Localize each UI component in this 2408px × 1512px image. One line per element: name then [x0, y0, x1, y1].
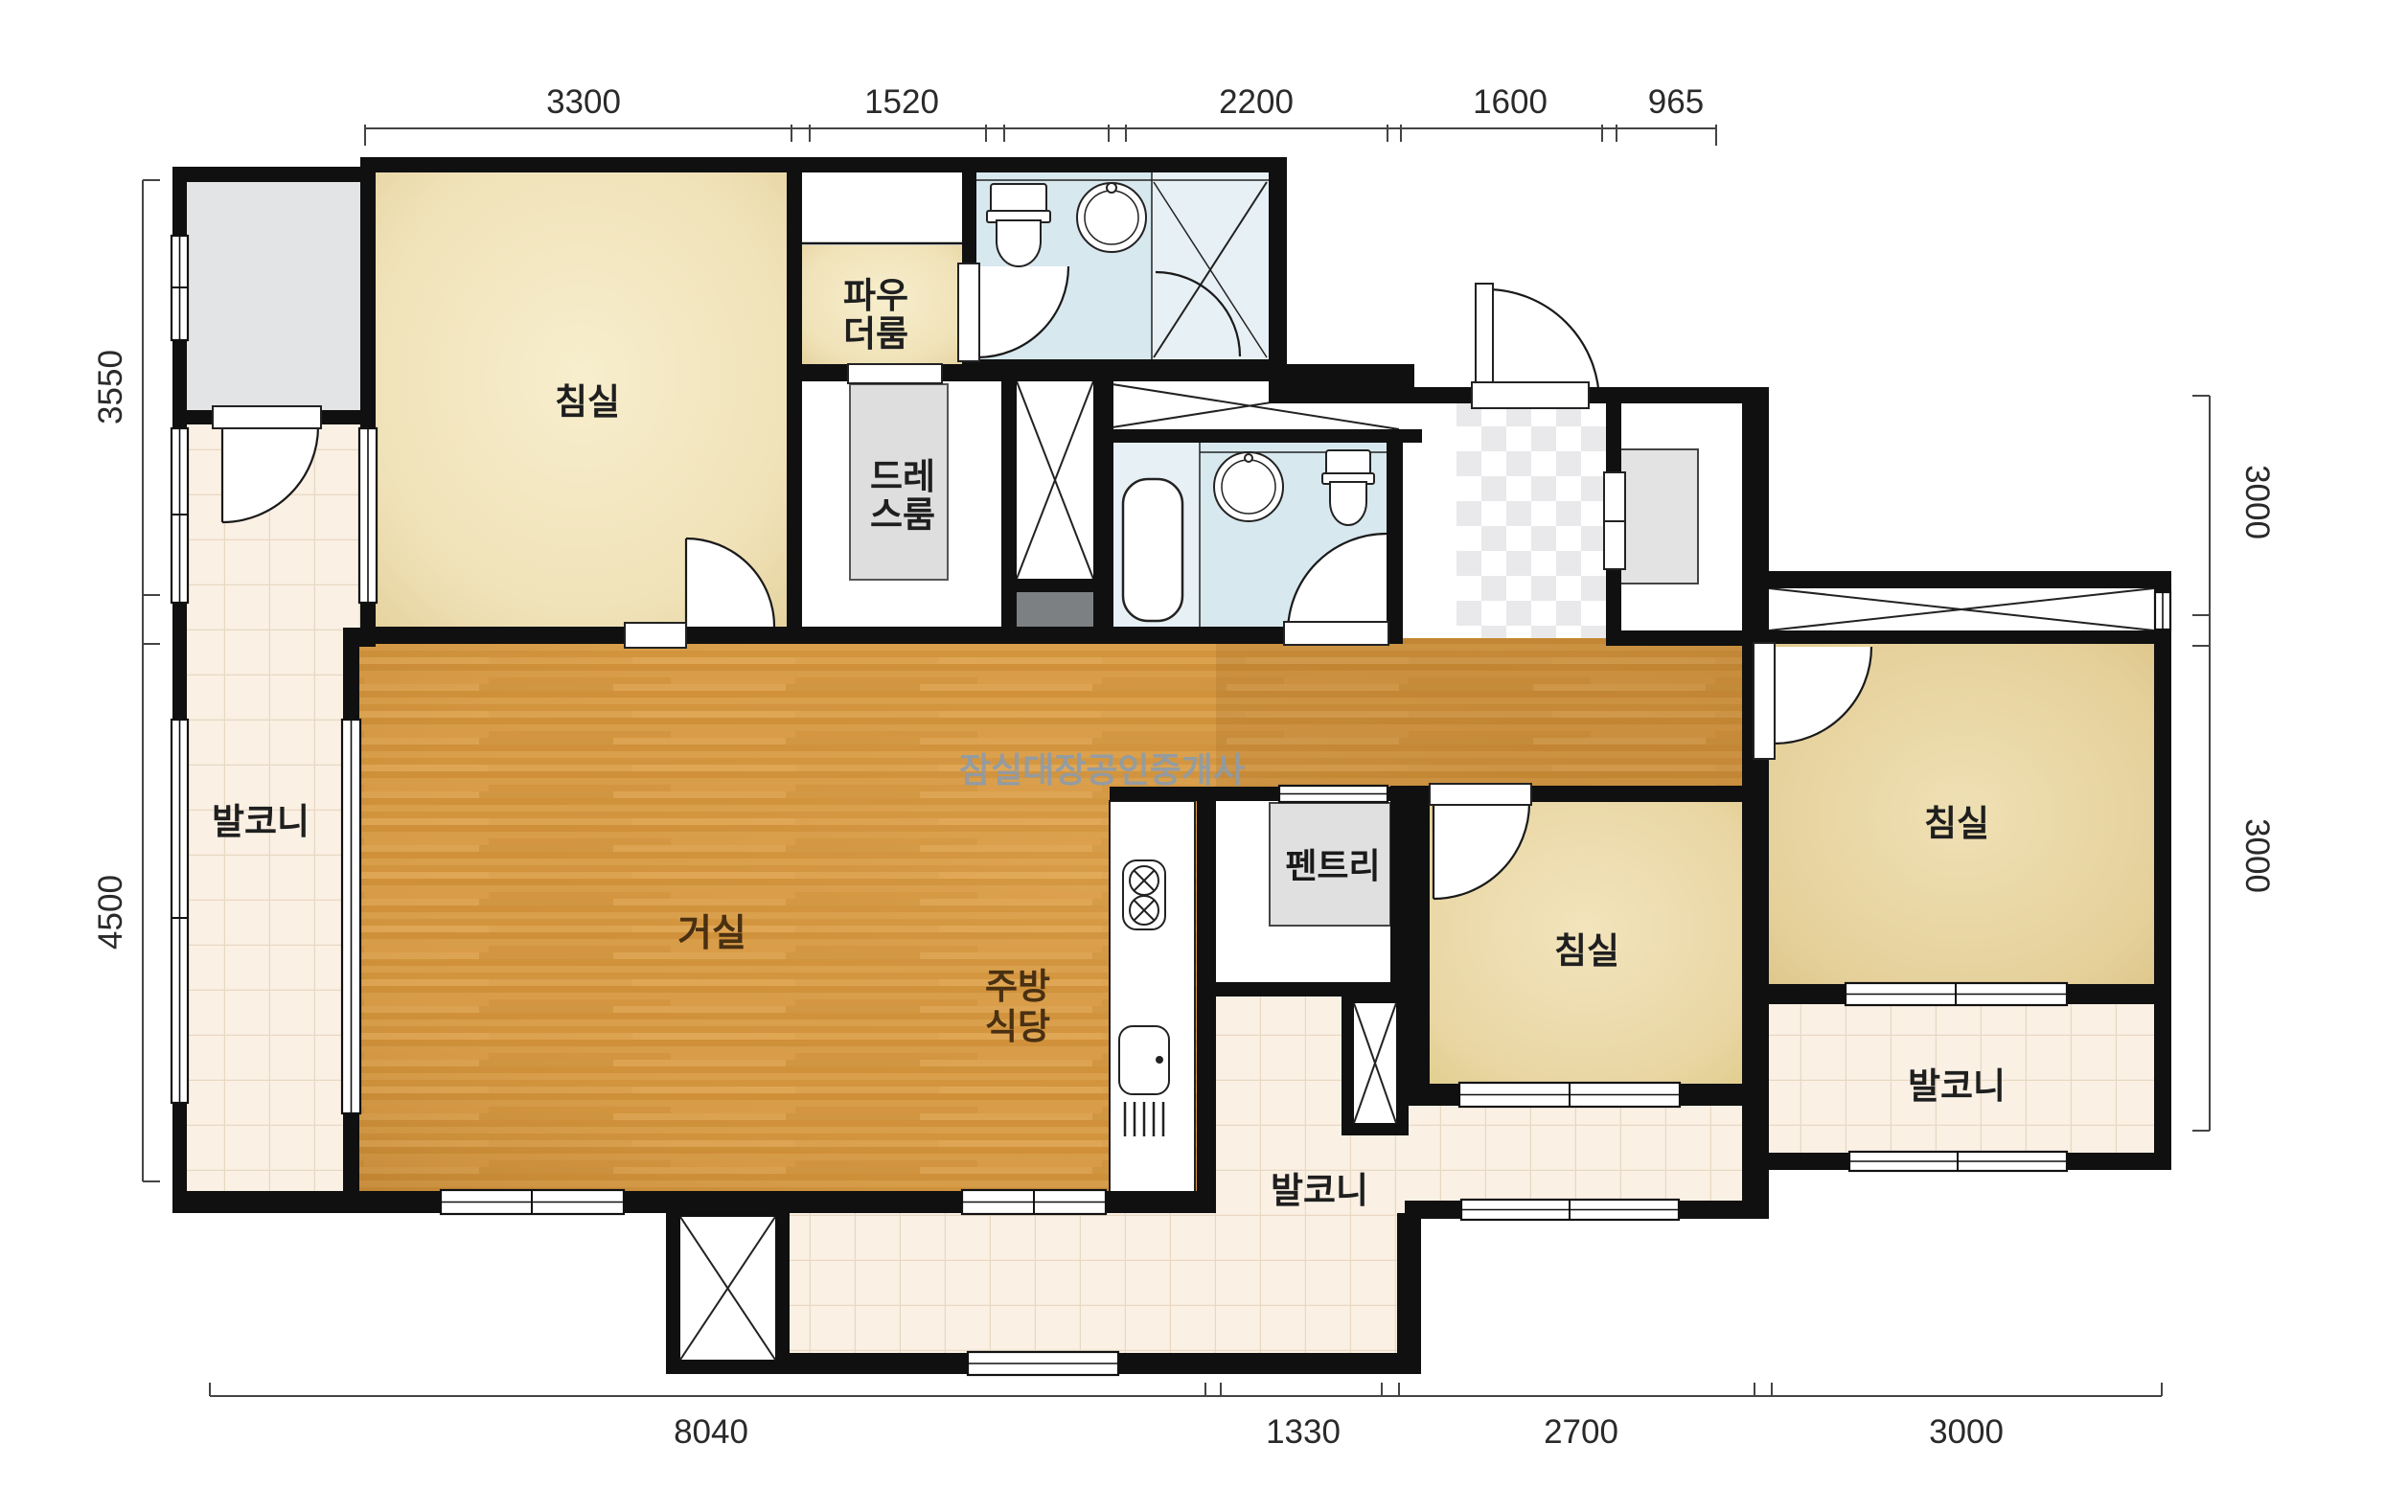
- svg-text:1520: 1520: [864, 83, 939, 121]
- svg-text:3000: 3000: [2238, 818, 2276, 893]
- svg-text:8040: 8040: [674, 1413, 748, 1451]
- svg-text:침실: 침실: [1554, 931, 1619, 971]
- svg-text:2200: 2200: [1219, 83, 1294, 121]
- svg-text:3550: 3550: [92, 350, 129, 424]
- svg-text:3000: 3000: [1929, 1413, 2004, 1451]
- svg-text:식당: 식당: [985, 1007, 1050, 1046]
- svg-text:드레: 드레: [870, 457, 935, 496]
- svg-text:펜트리: 펜트리: [1285, 846, 1380, 885]
- svg-text:침실: 침실: [1924, 804, 1989, 843]
- svg-text:3000: 3000: [2238, 465, 2276, 539]
- svg-text:주방: 주방: [985, 967, 1050, 1006]
- svg-text:1330: 1330: [1266, 1413, 1341, 1451]
- svg-text:965: 965: [1648, 83, 1704, 121]
- svg-text:거실: 거실: [677, 913, 746, 954]
- svg-text:4500: 4500: [92, 875, 129, 950]
- svg-text:1600: 1600: [1473, 83, 1548, 121]
- svg-text:발코니: 발코니: [1271, 1171, 1368, 1210]
- svg-text:잠실대장공인중개사: 잠실대장공인중개사: [959, 750, 1245, 790]
- svg-text:발코니: 발코니: [1908, 1066, 2006, 1106]
- svg-text:스룸: 스룸: [870, 495, 935, 535]
- svg-text:발코니: 발코니: [212, 802, 310, 841]
- svg-text:더룸: 더룸: [843, 314, 908, 354]
- svg-text:파우: 파우: [843, 276, 908, 315]
- svg-text:2700: 2700: [1544, 1413, 1618, 1451]
- svg-text:침실: 침실: [555, 382, 620, 422]
- svg-text:3300: 3300: [546, 83, 621, 121]
